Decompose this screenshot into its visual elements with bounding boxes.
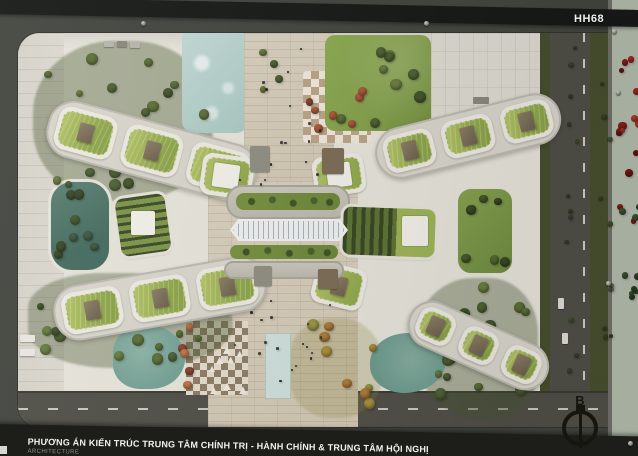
person-dot: [265, 88, 268, 91]
tree: [408, 69, 419, 80]
green-roof-block: [51, 104, 120, 162]
tree: [575, 139, 579, 143]
roof-panel: [131, 211, 155, 235]
car-icon: [20, 335, 35, 342]
tree: [152, 353, 164, 365]
tree: [86, 53, 98, 65]
screw-icon: [612, 29, 617, 34]
rooftop-unit: [151, 288, 169, 309]
person-dot: [250, 311, 253, 314]
tree: [311, 107, 319, 115]
green-roof-block: [497, 341, 546, 388]
service-block: [254, 266, 272, 286]
tree: [336, 114, 346, 124]
rooftop-unit: [459, 125, 478, 147]
person-dot: [258, 352, 261, 355]
tree: [568, 62, 574, 68]
screw-icon: [424, 21, 429, 26]
tree: [109, 179, 121, 191]
person-dot: [316, 173, 319, 176]
rooftop-unit: [400, 140, 419, 162]
flower: [633, 150, 638, 156]
tree: [123, 178, 134, 189]
tree: [609, 334, 613, 338]
tree: [567, 368, 573, 374]
tree: [53, 176, 62, 185]
person-dot: [306, 346, 308, 348]
roof-garden-lower: [230, 245, 338, 259]
poster-plate: HH68: [574, 13, 604, 25]
flower: [628, 56, 635, 63]
tree: [90, 243, 99, 252]
tree: [490, 255, 500, 265]
green-roof-block: [411, 303, 460, 350]
tree: [85, 168, 95, 178]
car-icon: [130, 42, 140, 48]
leaf: [634, 273, 638, 281]
north-arrow-icon: B: [556, 394, 604, 456]
tree: [603, 334, 609, 340]
flower: [622, 59, 629, 66]
skylight-glass: [233, 221, 345, 239]
ring-road-right: [540, 33, 612, 392]
rooftop-unit: [517, 110, 536, 132]
person-dot: [239, 179, 241, 181]
screw-icon: [616, 90, 621, 95]
tree: [521, 308, 529, 316]
rooftop-unit: [142, 140, 161, 162]
screw-icon: [606, 281, 611, 286]
green-roof-block: [117, 122, 186, 180]
tree: [40, 344, 51, 355]
board-edge: [608, 0, 612, 456]
tree: [259, 49, 267, 57]
flower: [619, 68, 624, 73]
tree: [185, 367, 193, 375]
site-plan: [18, 33, 612, 427]
compass-circle: [562, 410, 598, 446]
lane-marking: [583, 33, 585, 392]
frame-top-bar: [0, 0, 638, 27]
tree: [199, 109, 209, 119]
reflecting-pool: [265, 333, 291, 399]
background-window: [610, 0, 638, 456]
flower: [633, 88, 638, 95]
service-block: [322, 148, 344, 174]
flower: [625, 169, 633, 177]
green-roof-block: [454, 322, 503, 369]
tree: [443, 373, 451, 381]
compass-cap: [576, 405, 585, 414]
tree: [70, 215, 80, 225]
green-roof-block: [59, 284, 125, 336]
tree: [568, 94, 573, 99]
flower: [631, 115, 638, 122]
screw-icon: [628, 441, 633, 446]
tree: [601, 114, 607, 120]
person-dot: [287, 71, 289, 73]
tree: [107, 83, 117, 93]
tree: [494, 198, 502, 206]
person-dot: [260, 319, 262, 321]
bench: [473, 97, 489, 104]
tree: [324, 322, 334, 332]
green-roof-block: [497, 97, 556, 146]
leaf: [632, 214, 638, 221]
car-icon: [104, 41, 114, 47]
rooftop-unit: [468, 334, 489, 357]
tree: [414, 91, 426, 103]
tree: [69, 233, 78, 242]
tree: [477, 302, 487, 312]
tree: [56, 241, 67, 252]
poster-photo: HH68 PHƯƠNG ÁN KIẾN TRÚC TRUNG TÂM CHÍNH…: [0, 0, 638, 456]
tree: [183, 381, 192, 390]
tree: [321, 346, 332, 357]
tree: [608, 287, 613, 292]
car-icon: [117, 41, 127, 47]
tree: [364, 398, 375, 409]
tree: [144, 58, 153, 67]
tree: [574, 353, 579, 358]
green-roof-block: [380, 126, 439, 175]
tree: [461, 254, 471, 264]
tree: [479, 195, 488, 204]
person-dot: [310, 357, 313, 360]
service-block: [250, 146, 270, 172]
caption-edge-fragment: [0, 446, 7, 454]
tree: [155, 343, 163, 351]
rooftop-unit: [83, 300, 101, 321]
water-pond: [182, 33, 248, 133]
person-dot: [280, 141, 283, 144]
tree: [44, 71, 51, 78]
tree: [567, 122, 572, 127]
person-dot: [319, 129, 322, 132]
service-block: [318, 269, 338, 289]
roof-panel: [402, 216, 428, 246]
central-atrium-skylight: [230, 218, 348, 242]
tree: [607, 221, 613, 227]
roof-garden-upper: [236, 193, 340, 210]
tree: [329, 111, 338, 120]
tree: [474, 383, 483, 392]
tree: [607, 137, 613, 143]
car-icon: [562, 333, 568, 344]
poster-caption: PHƯƠNG ÁN KIẾN TRÚC TRUNG TÂM CHÍNH TRỊ …: [0, 424, 638, 456]
tree: [186, 323, 194, 331]
rooftop-unit: [425, 315, 446, 338]
tree: [168, 352, 178, 362]
green-roof-block: [127, 272, 193, 324]
green-roof-block: [439, 111, 498, 160]
planting-strip: [540, 33, 550, 392]
screw-icon: [141, 21, 146, 26]
rooftop-unit: [76, 122, 95, 144]
tree: [74, 189, 85, 200]
tree: [163, 88, 173, 98]
car-icon: [20, 349, 35, 356]
tree: [141, 108, 150, 117]
person-dot: [276, 347, 279, 350]
person-dot: [305, 161, 307, 163]
person-dot: [262, 81, 265, 84]
car-icon: [558, 298, 564, 309]
tree: [478, 282, 489, 293]
tree: [390, 79, 401, 90]
rooftop-unit: [511, 353, 532, 376]
tree: [170, 81, 178, 89]
tree: [435, 388, 447, 400]
tree: [466, 205, 476, 215]
tree: [180, 349, 189, 358]
tree: [360, 388, 370, 398]
